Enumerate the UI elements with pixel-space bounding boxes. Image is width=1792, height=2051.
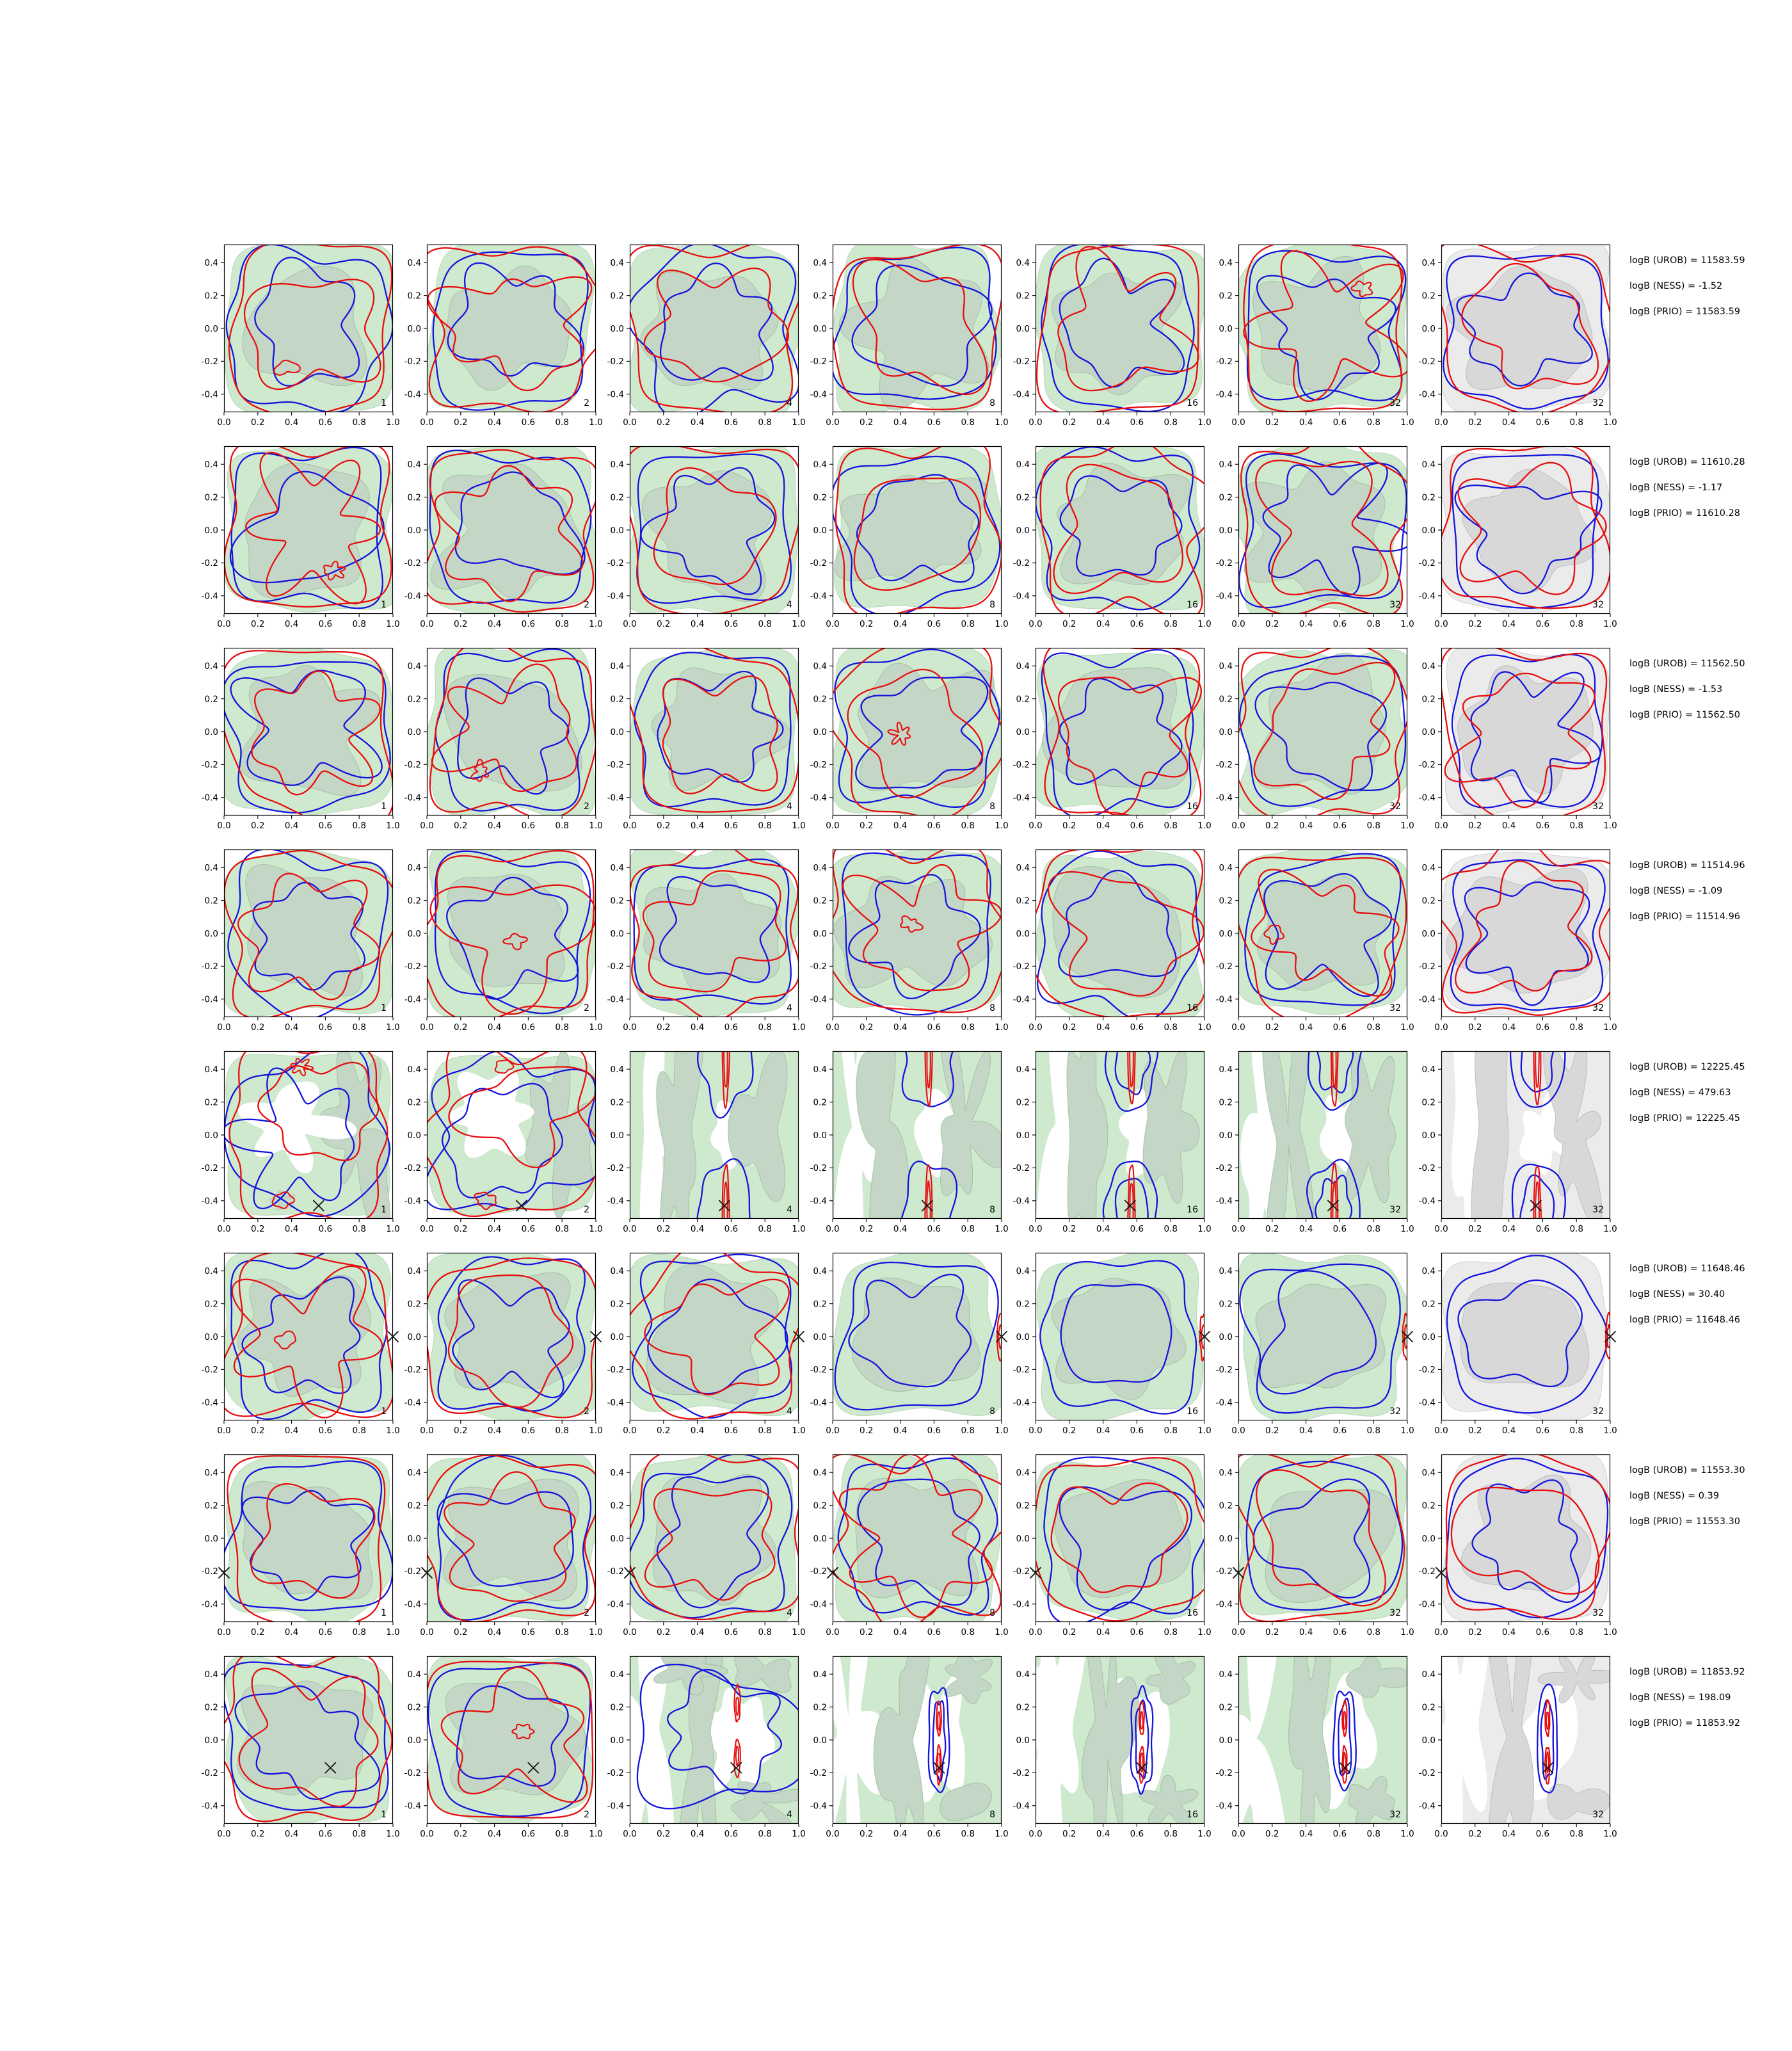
x-tick-label: 0.8 <box>1164 619 1177 629</box>
x-tick-label: 1.0 <box>1603 1224 1617 1234</box>
x-tick-label: 0.6 <box>724 1022 738 1033</box>
y-tick-label: -0.2 <box>1013 760 1030 770</box>
x-tick-label: 1.0 <box>1197 1224 1211 1234</box>
x-tick-label: 0.2 <box>1468 1627 1482 1637</box>
y-tick-label: 0.0 <box>1219 1130 1233 1141</box>
y-tick-label: 0.4 <box>1422 1266 1436 1276</box>
panel-count-label: 2 <box>584 1003 589 1013</box>
y-tick-label: 0.0 <box>205 1130 218 1141</box>
y-tick-label: 0.2 <box>1016 1702 1030 1712</box>
y-tick-label: 0.0 <box>205 1332 218 1342</box>
y-tick-label: 0.4 <box>611 863 624 873</box>
panel-count-label: 32 <box>1592 1003 1604 1013</box>
y-tick-label: 0.4 <box>611 1669 624 1680</box>
y-tick-label: 0.4 <box>408 1468 421 1478</box>
x-tick-label: 0.2 <box>454 1829 467 1839</box>
x-tick-label: 0.6 <box>319 1829 332 1839</box>
y-tick-label: 0.2 <box>1422 694 1436 704</box>
y-tick-label: 0.2 <box>1016 1500 1030 1511</box>
x-tick-label: 0.8 <box>1366 1627 1380 1637</box>
x-tick-label: 0.4 <box>488 821 501 831</box>
panel-plot-area <box>831 237 1004 417</box>
y-tick-label: 0.2 <box>1219 1500 1233 1511</box>
y-tick-label: -0.4 <box>1216 1600 1233 1610</box>
y-tick-label: -0.2 <box>1013 1163 1030 1173</box>
x-tick-label: 0.8 <box>352 1627 365 1637</box>
y-tick-label: -0.2 <box>404 1566 421 1577</box>
panel-count-label: 16 <box>1187 600 1198 610</box>
logb-annotation: logB (UROB) = 12225.45 <box>1629 1062 1745 1072</box>
x-tick-label: 0.2 <box>657 417 670 428</box>
logb-annotation: logB (PRIO) = 11562.50 <box>1629 710 1740 720</box>
x-tick-label: 0.8 <box>758 417 771 428</box>
x-tick-label: 0.2 <box>251 1426 264 1436</box>
y-tick-label: 0.0 <box>611 1534 624 1544</box>
y-tick-label: 0.2 <box>813 694 827 704</box>
y-tick-label: 0.4 <box>408 460 421 470</box>
panel-count-label: 1 <box>381 1608 387 1618</box>
x-tick-label: 1.0 <box>589 1627 602 1637</box>
x-tick-label: 0.4 <box>893 1426 907 1436</box>
x-tick-label: 0.8 <box>555 1627 568 1637</box>
panel-count-label: 32 <box>1389 1003 1401 1013</box>
y-tick-label: 0.0 <box>813 1130 827 1141</box>
x-tick-label: 0.6 <box>1130 619 1144 629</box>
y-tick-label: 0.2 <box>611 896 624 906</box>
x-tick-label: 0.2 <box>251 1627 264 1637</box>
x-tick-label: 0.4 <box>1502 821 1516 831</box>
x-tick-label: 0.4 <box>488 1829 501 1839</box>
x-tick-label: 0.6 <box>319 417 332 428</box>
panel-r1c5: 0.00.20.40.60.81.00.40.20.0-0.2-0.416 <box>1013 240 1212 428</box>
y-tick-label: -0.2 <box>1013 961 1030 972</box>
y-tick-label: -0.4 <box>810 1801 827 1812</box>
y-tick-label: 0.2 <box>813 1299 827 1309</box>
y-tick-label: -0.4 <box>607 1801 624 1812</box>
x-tick-label: 1.0 <box>1197 821 1211 831</box>
x-tick-label: 0.2 <box>1265 1426 1279 1436</box>
x-tick-label: 0.0 <box>217 821 230 831</box>
x-tick-label: 0.2 <box>1468 821 1482 831</box>
x-tick-label: 1.0 <box>1603 417 1617 428</box>
x-tick-label: 1.0 <box>1603 1627 1617 1637</box>
y-tick-label: -0.2 <box>202 760 218 770</box>
x-tick-label: 0.2 <box>1468 1829 1482 1839</box>
panel-plot-area <box>221 1452 399 1628</box>
panel-r6c6: 0.00.20.40.60.81.00.40.20.0-0.2-0.432 <box>1216 1253 1414 1436</box>
x-tick-label: 0.2 <box>1265 619 1279 629</box>
panel-r2c3: 0.00.20.40.60.81.00.40.20.0-0.2-0.44 <box>607 440 806 629</box>
x-tick-label: 0.4 <box>488 1022 501 1033</box>
panel-plot-area <box>1442 1250 1612 1421</box>
panel-r8c5: 0.00.20.40.60.81.00.40.20.0-0.2-0.416 <box>1013 1591 1212 1897</box>
x-tick-label: 0.8 <box>961 417 974 428</box>
x-tick-label: 0.2 <box>1468 1224 1482 1234</box>
panel-r1c2: 0.00.20.40.60.81.00.40.20.0-0.2-0.42 <box>404 235 609 428</box>
y-tick-label: -0.4 <box>202 1196 218 1207</box>
x-tick-label: 0.2 <box>657 1224 670 1234</box>
y-tick-label: -0.2 <box>810 357 827 367</box>
x-tick-label: 0.6 <box>1333 619 1347 629</box>
panel-count-label: 16 <box>1187 801 1198 812</box>
panel-count-label: 1 <box>381 1406 387 1417</box>
y-tick-label: -0.2 <box>607 357 624 367</box>
contour-grid-figure: 0.00.20.40.60.81.00.40.20.0-0.2-0.410.00… <box>0 0 1792 2048</box>
y-tick-label: 0.4 <box>408 1669 421 1680</box>
x-tick-label: 0.0 <box>217 1426 230 1436</box>
y-tick-label: 0.2 <box>1422 492 1436 503</box>
y-tick-label: 0.4 <box>408 863 421 873</box>
x-tick-label: 0.2 <box>251 619 264 629</box>
y-tick-label: -0.2 <box>202 1365 218 1375</box>
x-tick-label: 0.8 <box>961 619 974 629</box>
panel-plot-area <box>831 440 1003 617</box>
x-tick-label: 0.8 <box>1569 1426 1583 1436</box>
x-tick-label: 1.0 <box>1197 1426 1211 1436</box>
logb-annotation: logB (UROB) = 11562.50 <box>1629 659 1745 669</box>
y-tick-label: 0.2 <box>1219 1702 1233 1712</box>
y-tick-label: 0.0 <box>1016 324 1030 334</box>
x-tick-label: 0.0 <box>420 619 433 629</box>
y-tick-label: -0.2 <box>1419 1163 1436 1173</box>
y-tick-label: -0.2 <box>1013 1365 1030 1375</box>
y-tick-label: 0.0 <box>1422 1130 1436 1141</box>
x-tick-label: 0.8 <box>1569 1224 1583 1234</box>
x-tick-label: 0.0 <box>623 417 636 428</box>
x-tick-label: 1.0 <box>1400 1022 1414 1033</box>
panel-r1c1: 0.00.20.40.60.81.00.40.20.0-0.2-0.41 <box>202 241 400 428</box>
panel-r1c3: 0.00.20.40.60.81.00.40.20.0-0.2-0.44 <box>607 239 807 428</box>
x-tick-label: 0.4 <box>893 417 907 428</box>
y-tick-label: 0.4 <box>1219 1468 1233 1478</box>
x-tick-label: 0.8 <box>758 821 771 831</box>
y-tick-label: -0.2 <box>404 558 421 568</box>
x-tick-label: 0.8 <box>1569 417 1583 428</box>
x-tick-label: 0.6 <box>1333 1224 1347 1234</box>
y-tick-label: -0.2 <box>607 760 624 770</box>
panel-r2c4: 0.00.20.40.60.81.00.40.20.0-0.2-0.48 <box>810 440 1009 629</box>
logb-annotation: logB (PRIO) = 11583.59 <box>1629 307 1740 317</box>
y-tick-label: -0.4 <box>607 1196 624 1207</box>
x-tick-label: 0.2 <box>860 1627 873 1637</box>
y-tick-label: -0.4 <box>1216 390 1233 400</box>
x-tick-label: 0.6 <box>724 417 738 428</box>
x-tick-label: 0.6 <box>319 1627 332 1637</box>
y-tick-label: 0.2 <box>1016 896 1030 906</box>
y-tick-label: -0.2 <box>404 1768 421 1778</box>
x-tick-label: 0.4 <box>1299 821 1313 831</box>
x-tick-label: 0.6 <box>1130 417 1144 428</box>
x-tick-label: 0.6 <box>927 1627 941 1637</box>
panel-count-label: 4 <box>787 1810 792 1820</box>
x-tick-label: 1.0 <box>995 417 1008 428</box>
y-tick-label: 0.4 <box>1219 661 1233 672</box>
y-tick-label: 0.4 <box>408 258 421 268</box>
y-tick-label: -0.4 <box>202 1801 218 1812</box>
panel-count-label: 16 <box>1187 398 1198 408</box>
x-tick-label: 0.4 <box>893 619 907 629</box>
y-tick-label: -0.4 <box>404 591 421 602</box>
panel-count-label: 4 <box>787 398 792 408</box>
y-tick-label: -0.4 <box>202 1398 218 1408</box>
x-tick-label: 0.2 <box>1265 1829 1279 1839</box>
y-tick-label: 0.4 <box>1219 1266 1233 1276</box>
y-tick-label: 0.4 <box>611 258 624 268</box>
x-tick-label: 0.8 <box>555 1224 568 1234</box>
panel-plot-area <box>1429 1578 1615 1922</box>
x-tick-label: 0.8 <box>1164 821 1177 831</box>
y-tick-label: 0.0 <box>1422 526 1436 536</box>
x-tick-label: 1.0 <box>1197 1022 1211 1033</box>
x-tick-label: 0.8 <box>1164 1829 1177 1839</box>
y-tick-label: -0.2 <box>1216 1566 1233 1577</box>
x-tick-label: 0.4 <box>893 821 907 831</box>
y-tick-label: -0.4 <box>404 1801 421 1812</box>
x-tick-label: 0.6 <box>724 1627 738 1637</box>
y-tick-label: -0.4 <box>607 995 624 1005</box>
x-tick-label: 0.8 <box>758 1829 771 1839</box>
panel-r8c7: 0.00.20.40.60.81.00.40.20.0-0.2-0.432 <box>1419 1578 1617 1922</box>
y-tick-label: -0.4 <box>810 1600 827 1610</box>
x-tick-label: 1.0 <box>1603 619 1617 629</box>
y-tick-label: 0.4 <box>408 1266 421 1276</box>
y-tick-label: -0.4 <box>1013 995 1030 1005</box>
x-tick-label: 0.8 <box>1569 619 1583 629</box>
panel-count-label: 4 <box>787 600 792 610</box>
x-tick-label: 0.2 <box>251 1022 264 1033</box>
x-tick-label: 1.0 <box>386 1022 399 1033</box>
x-tick-label: 0.6 <box>522 619 535 629</box>
panel-count-label: 32 <box>1389 600 1401 610</box>
panel-r4c2: 0.00.20.40.60.81.00.40.20.0-0.2-0.42 <box>404 841 603 1033</box>
x-tick-label: 0.8 <box>1366 1426 1380 1436</box>
panel-plot-area <box>220 849 399 1019</box>
panel-r3c6: 0.00.20.40.60.81.00.40.20.0-0.2-0.432 <box>1216 645 1418 831</box>
panel-r8c1: 0.00.20.40.60.81.00.40.20.0-0.2-0.41 <box>202 1652 401 1839</box>
panel-r6c5: 0.00.20.40.60.81.00.40.20.0-0.2-0.416 <box>1013 1250 1212 1436</box>
y-tick-label: -0.4 <box>810 390 827 400</box>
y-tick-label: 0.4 <box>1422 661 1436 672</box>
x-tick-label: 0.4 <box>285 1426 298 1436</box>
x-tick-label: 0.0 <box>623 1022 636 1033</box>
y-tick-label: -0.4 <box>404 1196 421 1207</box>
y-tick-label: 0.4 <box>408 1065 421 1075</box>
x-tick-label: 1.0 <box>386 1224 399 1234</box>
x-tick-label: 0.4 <box>1299 1224 1313 1234</box>
x-tick-label: 0.4 <box>285 1627 298 1637</box>
y-tick-label: 0.2 <box>1016 694 1030 704</box>
y-tick-label: 0.2 <box>1016 1097 1030 1107</box>
x-tick-label: 0.0 <box>1434 1022 1448 1033</box>
panel-plot-area <box>1230 239 1409 417</box>
x-tick-label: 1.0 <box>1400 1426 1414 1436</box>
panel-count-label: 1 <box>381 1003 387 1013</box>
x-tick-label: 0.4 <box>691 1627 704 1637</box>
x-tick-label: 0.0 <box>1231 821 1245 831</box>
figure-canvas: 0.00.20.40.60.81.00.40.20.0-0.2-0.410.00… <box>0 0 1792 2048</box>
x-tick-label: 0.2 <box>454 821 467 831</box>
x-tick-label: 0.8 <box>1164 1627 1177 1637</box>
y-tick-label: -0.2 <box>607 1163 624 1173</box>
x-tick-label: 0.6 <box>1130 821 1144 831</box>
x-tick-label: 1.0 <box>589 619 602 629</box>
logb-annotation: logB (NESS) = 198.09 <box>1629 1693 1731 1703</box>
panel-plot-area <box>828 643 1005 821</box>
y-tick-label: 0.4 <box>205 1266 218 1276</box>
y-tick-label: -0.2 <box>1419 1566 1436 1577</box>
panel-r7c4: 0.00.20.40.60.81.00.40.20.0-0.2-0.48 <box>810 1448 1015 1637</box>
x-tick-label: 0.0 <box>1231 1829 1245 1839</box>
x-tick-label: 0.6 <box>1536 1829 1549 1839</box>
x-tick-label: 0.4 <box>488 619 501 629</box>
x-tick-label: 0.8 <box>758 1224 771 1234</box>
x-tick-label: 0.4 <box>285 619 298 629</box>
y-tick-label: 0.0 <box>611 929 624 939</box>
x-tick-label: 0.0 <box>623 1829 636 1839</box>
y-tick-label: 0.4 <box>611 1065 624 1075</box>
y-tick-label: -0.4 <box>810 995 827 1005</box>
x-tick-label: 1.0 <box>1197 1627 1211 1637</box>
x-tick-label: 0.0 <box>826 1627 839 1637</box>
y-tick-label: 0.0 <box>813 324 827 334</box>
y-tick-label: 0.2 <box>1016 291 1030 301</box>
logb-annotation: logB (UROB) = 11514.96 <box>1629 860 1745 871</box>
x-tick-label: 0.8 <box>555 1022 568 1033</box>
x-tick-label: 0.0 <box>217 1224 230 1234</box>
density-fill-inner <box>237 1681 372 1795</box>
x-tick-label: 0.0 <box>826 821 839 831</box>
x-tick-label: 0.0 <box>1434 821 1448 831</box>
y-tick-label: 0.2 <box>205 492 218 503</box>
y-tick-label: 0.0 <box>1016 929 1030 939</box>
x-tick-label: 0.2 <box>860 821 873 831</box>
x-tick-label: 0.2 <box>454 619 467 629</box>
x-tick-label: 0.4 <box>285 1829 298 1839</box>
x-tick-label: 0.8 <box>352 1426 365 1436</box>
x-tick-label: 0.2 <box>657 1022 670 1033</box>
x-tick-label: 0.2 <box>1062 417 1076 428</box>
x-tick-label: 0.0 <box>623 619 636 629</box>
x-tick-label: 1.0 <box>792 1426 805 1436</box>
panel-count-label: 32 <box>1389 398 1401 408</box>
y-tick-label: 0.0 <box>1422 1735 1436 1746</box>
y-tick-label: -0.2 <box>810 1768 827 1778</box>
y-tick-label: -0.2 <box>1216 357 1233 367</box>
x-tick-label: 0.8 <box>1164 1426 1177 1436</box>
x-tick-label: 0.2 <box>1265 1224 1279 1234</box>
y-tick-label: -0.4 <box>404 390 421 400</box>
x-tick-label: 0.2 <box>860 1022 873 1033</box>
x-tick-label: 0.6 <box>927 821 941 831</box>
x-tick-label: 0.2 <box>1265 821 1279 831</box>
logb-annotation: logB (UROB) = 11648.46 <box>1629 1264 1745 1274</box>
x-tick-label: 0.6 <box>927 1224 941 1234</box>
x-tick-label: 0.4 <box>1096 1627 1110 1637</box>
density-fill-inner <box>647 1264 779 1403</box>
x-tick-label: 0.4 <box>691 1829 704 1839</box>
x-tick-label: 0.2 <box>860 1224 873 1234</box>
y-tick-label: -0.4 <box>1419 591 1436 602</box>
panel-plot-area <box>424 1249 600 1421</box>
x-tick-label: 0.2 <box>1468 417 1482 428</box>
y-tick-label: -0.2 <box>202 558 218 568</box>
y-tick-label: 0.0 <box>1219 526 1233 536</box>
x-tick-label: 0.8 <box>352 821 365 831</box>
logb-annotation: logB (NESS) = -1.17 <box>1629 483 1722 493</box>
y-tick-label: -0.2 <box>202 1163 218 1173</box>
x-tick-label: 0.4 <box>1096 1829 1110 1839</box>
x-tick-label: 0.6 <box>522 1224 535 1234</box>
panel-plot-area <box>1442 1446 1612 1623</box>
x-tick-label: 1.0 <box>1197 619 1211 629</box>
x-tick-label: 1.0 <box>995 821 1008 831</box>
panel-r7c5: 0.00.20.40.60.81.00.40.20.0-0.2-0.416 <box>1013 1455 1216 1638</box>
x-tick-label: 0.8 <box>758 619 771 629</box>
x-tick-label: 0.2 <box>1265 1627 1279 1637</box>
panel-count-label: 8 <box>989 1406 995 1417</box>
panel-r2c7: 0.00.20.40.60.81.00.40.20.0-0.2-0.432 <box>1419 444 1617 629</box>
x-tick-label: 1.0 <box>1603 1829 1617 1839</box>
x-tick-label: 0.6 <box>319 1224 332 1234</box>
y-tick-label: 0.0 <box>1422 929 1436 939</box>
panel-plot-area <box>218 1249 396 1422</box>
panel-count-label: 32 <box>1389 1205 1401 1215</box>
panel-plot-area <box>1434 839 1622 1015</box>
y-tick-label: -0.2 <box>810 760 827 770</box>
panel-plot-area <box>219 1652 401 1828</box>
x-tick-label: 0.8 <box>1569 1627 1583 1637</box>
x-tick-label: 0.8 <box>352 417 365 428</box>
panel-plot-area <box>1238 980 1407 1289</box>
panel-count-label: 8 <box>989 1810 995 1820</box>
y-tick-label: 0.2 <box>1219 1097 1233 1107</box>
x-tick-label: 1.0 <box>589 821 602 831</box>
y-tick-label: 0.2 <box>408 1299 421 1309</box>
x-tick-label: 0.8 <box>961 821 974 831</box>
x-tick-label: 0.6 <box>319 619 332 629</box>
x-tick-label: 0.2 <box>454 1426 467 1436</box>
x-tick-label: 1.0 <box>792 417 805 428</box>
x-tick-label: 0.8 <box>1366 417 1380 428</box>
panel-count-label: 16 <box>1187 1810 1198 1820</box>
y-tick-label: 0.2 <box>1422 896 1436 906</box>
x-tick-label: 0.4 <box>1096 619 1110 629</box>
y-tick-label: -0.2 <box>1216 961 1233 972</box>
x-tick-label: 0.4 <box>893 1829 907 1839</box>
panel-count-label: 2 <box>584 600 589 610</box>
panel-plot-area <box>1438 444 1611 615</box>
y-tick-label: 0.0 <box>408 929 421 939</box>
y-tick-label: 0.4 <box>1422 863 1436 873</box>
x-tick-label: 0.6 <box>1536 821 1549 831</box>
x-tick-label: 0.6 <box>1536 417 1549 428</box>
y-tick-label: -0.2 <box>1419 1768 1436 1778</box>
y-tick-label: -0.4 <box>1013 390 1030 400</box>
y-tick-label: -0.2 <box>810 1566 827 1577</box>
y-tick-label: 0.0 <box>1219 1534 1233 1544</box>
y-tick-label: 0.2 <box>205 1500 218 1511</box>
x-tick-label: 1.0 <box>1197 417 1211 428</box>
x-tick-label: 0.4 <box>285 1022 298 1033</box>
y-tick-label: -0.4 <box>1216 1398 1233 1408</box>
y-tick-label: 0.0 <box>205 1735 218 1746</box>
x-tick-label: 0.0 <box>217 619 230 629</box>
x-tick-label: 0.0 <box>420 1426 433 1436</box>
y-tick-label: 0.4 <box>408 661 421 672</box>
x-tick-label: 0.0 <box>1231 1627 1245 1637</box>
y-tick-label: 0.2 <box>611 694 624 704</box>
y-tick-label: 0.0 <box>611 727 624 737</box>
